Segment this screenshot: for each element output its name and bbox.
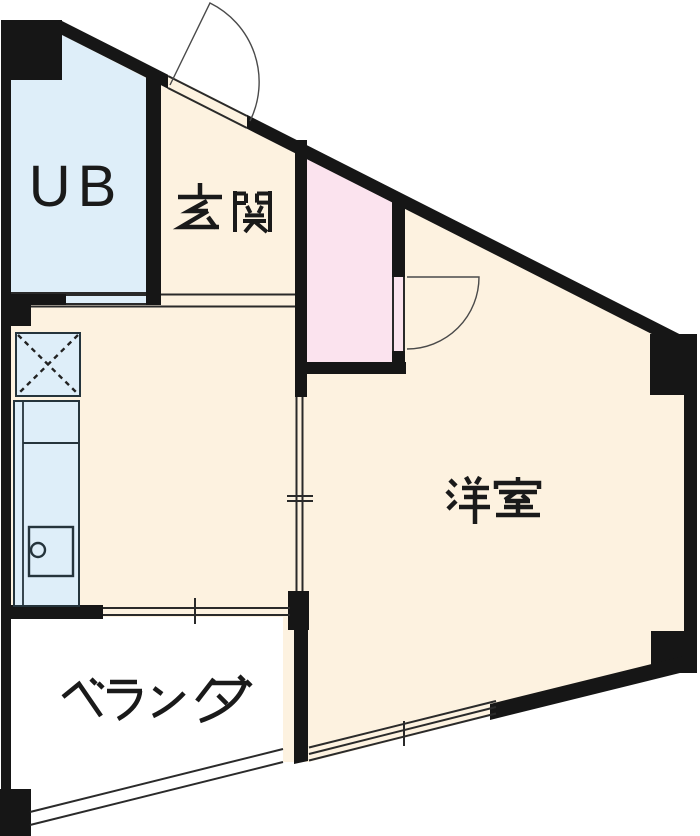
svg-text:UB: UB	[29, 154, 124, 219]
